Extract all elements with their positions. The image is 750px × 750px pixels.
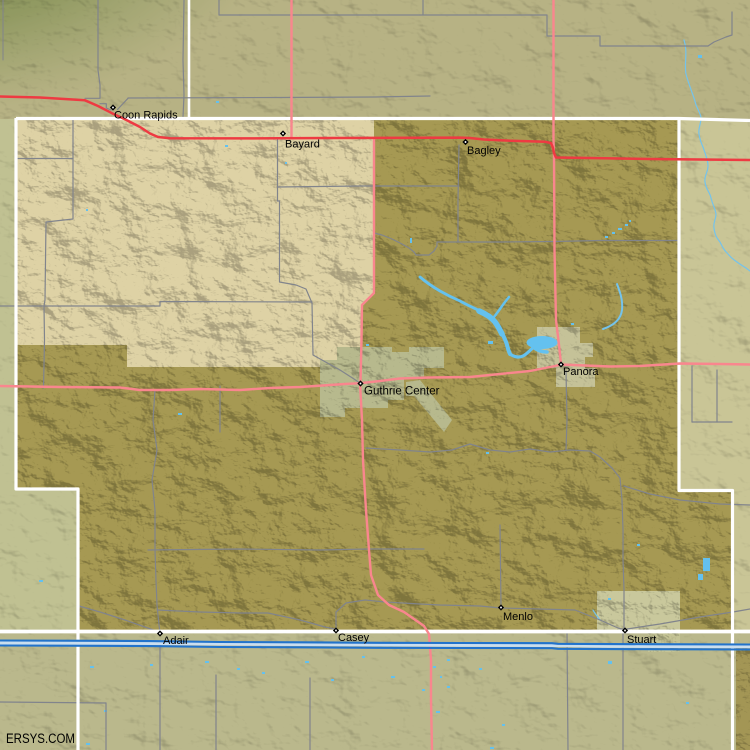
svg-text:Stuart: Stuart (627, 634, 656, 646)
svg-text:Guthrie Center: Guthrie Center (364, 386, 440, 398)
svg-text:Menlo: Menlo (503, 611, 533, 623)
svg-text:ERSYS.COM: ERSYS.COM (6, 731, 75, 746)
svg-text:Adair: Adair (163, 635, 189, 647)
svg-text:Panora: Panora (563, 366, 599, 378)
svg-text:Bayard: Bayard (285, 139, 320, 151)
svg-text:Bagley: Bagley (467, 145, 501, 157)
svg-text:Casey: Casey (338, 632, 370, 644)
svg-text:Coon Rapids: Coon Rapids (114, 110, 178, 122)
